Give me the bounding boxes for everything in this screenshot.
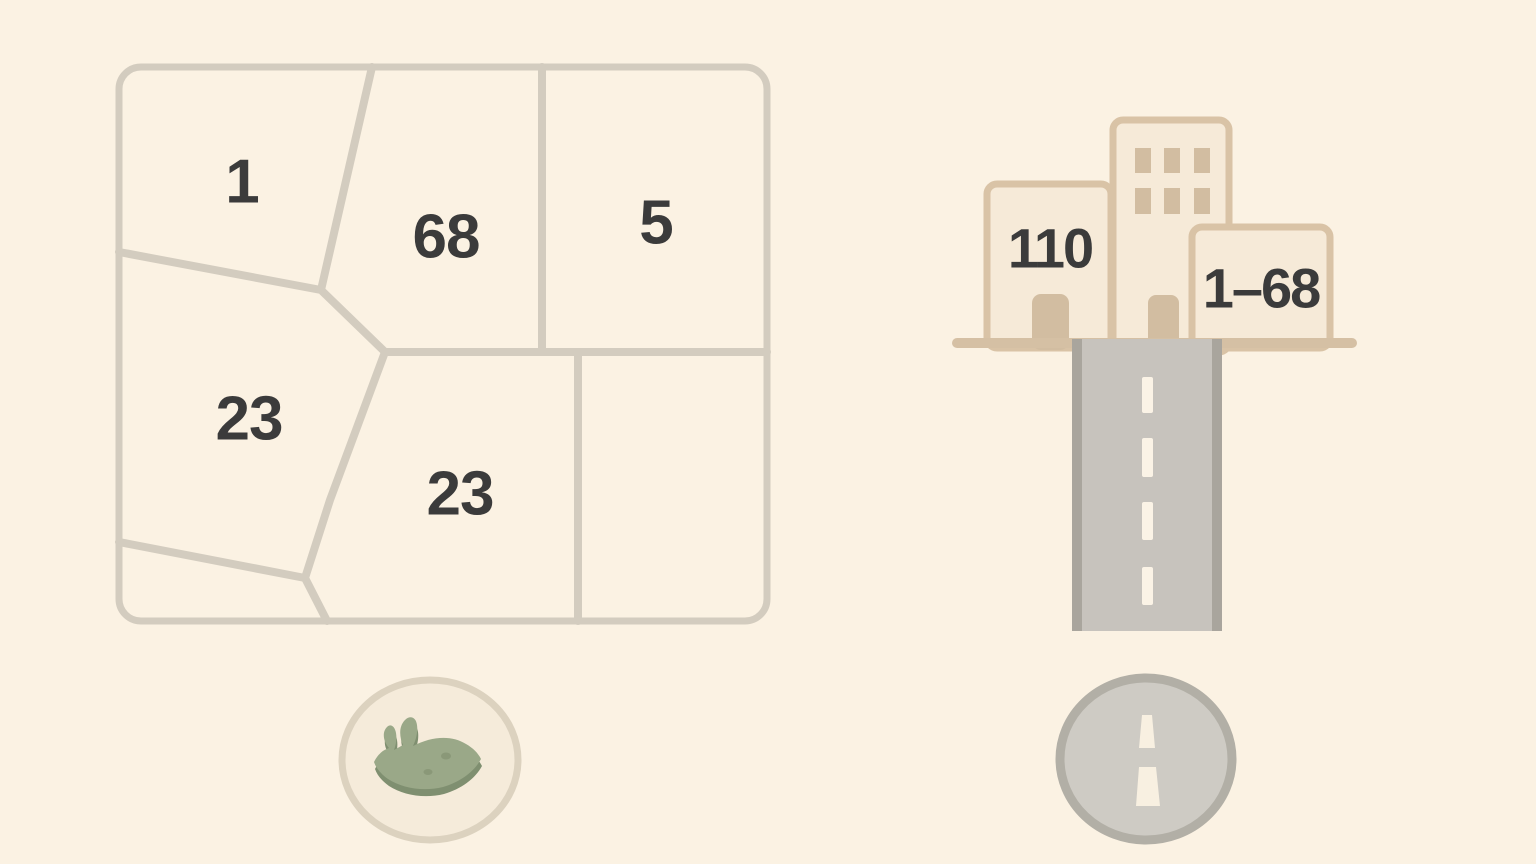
building-110: 110: [987, 184, 1111, 350]
parcel-label-5: 5: [639, 189, 672, 258]
parcel-label-23-middle: 23: [427, 460, 494, 529]
building-1-68-number: 1–68: [1203, 257, 1320, 320]
scene-svg: 1 68 5 23 23: [0, 0, 1536, 864]
road-edge-right: [1212, 339, 1222, 631]
illustration-canvas: 1 68 5 23 23: [0, 0, 1536, 864]
building-110-number: 110: [1008, 217, 1092, 280]
land-badge: [342, 680, 518, 840]
parcel-label-1: 1: [225, 148, 258, 217]
map-parcel-lines: [119, 67, 767, 621]
road: [1072, 339, 1222, 631]
map-border: [119, 67, 767, 621]
parcel-label-23-left: 23: [216, 385, 283, 454]
street-scene: 110 1–68: [957, 120, 1352, 631]
road-edge-left: [1072, 339, 1082, 631]
road-badge-circle: [1060, 678, 1232, 840]
parcel-map: 1 68 5 23 23: [119, 67, 767, 621]
building-1-68: 1–68: [1192, 227, 1330, 348]
parcel-label-68: 68: [413, 203, 480, 272]
road-badge: [1060, 678, 1232, 840]
